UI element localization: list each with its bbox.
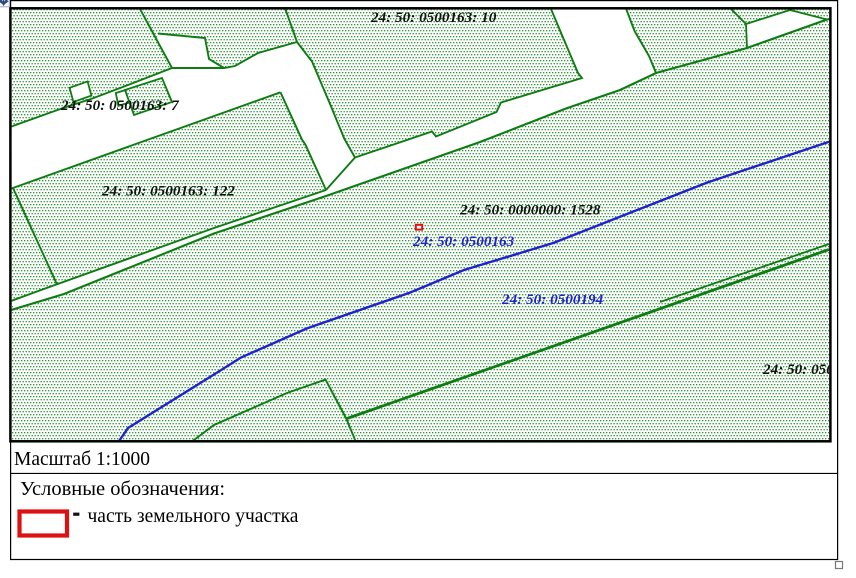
svg-text:Условные обозначения:: Условные обозначения: <box>20 478 225 500</box>
svg-text:24: 50: 0500163: 7: 24: 50: 0500163: 7 <box>60 97 180 114</box>
svg-text:часть земельного участка: часть земельного участка <box>88 506 299 527</box>
svg-text:24: 50: 0500163: 24: 50: 0500163 <box>412 233 515 250</box>
svg-text:24: 50: 0500163: 10: 24: 50: 0500163: 10 <box>370 9 497 26</box>
svg-text:24: 50: 0500163: 122: 24: 50: 0500163: 122 <box>101 183 235 200</box>
svg-text:Масштаб 1:1000: Масштаб 1:1000 <box>14 449 150 470</box>
svg-text:24: 50: 0000000: 1528: 24: 50: 0000000: 1528 <box>459 202 601 219</box>
svg-text:24: 50: 0500194: 24: 50: 0500194 <box>501 291 604 308</box>
